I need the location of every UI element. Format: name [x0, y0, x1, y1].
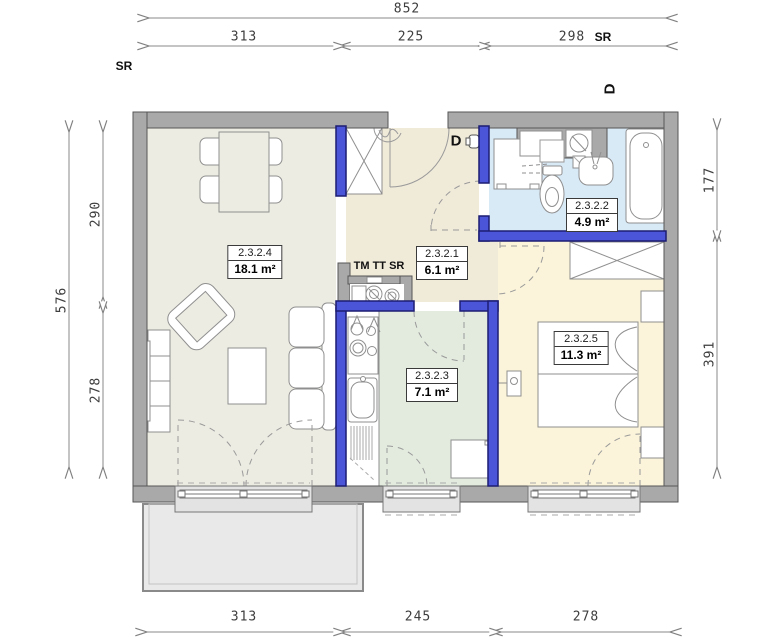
bathtub [626, 129, 666, 223]
window [383, 486, 460, 512]
room-area: 7.1 m² [407, 384, 457, 401]
label-d-top: D [602, 84, 619, 95]
window [175, 486, 312, 512]
room-label-bathroom: 2.3.2.2 4.9 m² [566, 198, 618, 232]
dim-left-total: 576 [55, 287, 70, 313]
label-sr-top-right: SR [595, 30, 612, 44]
room-id: 2.3.2.1 [417, 247, 467, 262]
dim-top-seg-3: 298 [559, 30, 585, 45]
dim-right-seg-2: 391 [703, 341, 718, 367]
tv-unit [144, 330, 170, 432]
coffee-table [228, 348, 266, 404]
floorplan-drawing [0, 0, 768, 637]
room-label-kitchen: 2.3.2.3 7.1 m² [406, 368, 458, 402]
room-id: 2.3.2.3 [407, 369, 457, 384]
floor-plan-canvas: 852 313 225 298 SR SR D 576 290 278 177 … [0, 0, 768, 637]
label-meters-tm-tt-sr: TM TT SR [354, 260, 405, 272]
room-id: 2.3.2.5 [555, 332, 608, 347]
room-id: 2.3.2.2 [567, 199, 617, 214]
room-label-bedroom: 2.3.2.5 11.3 m² [554, 331, 609, 365]
dim-top-total: 852 [394, 2, 420, 17]
hall-wardrobe [346, 128, 382, 194]
dim-bottom-seg-3: 278 [573, 610, 599, 625]
balcony [143, 504, 363, 591]
sofa [289, 303, 336, 430]
window [528, 486, 640, 512]
room-area: 11.3 m² [555, 347, 608, 364]
dim-bottom-seg-1: 313 [231, 610, 257, 625]
label-sr-left: SR [116, 59, 133, 73]
bedroom-wardrobe [570, 242, 664, 279]
dim-top-seg-1: 313 [231, 30, 257, 45]
dim-left-seg-2: 278 [89, 377, 104, 403]
room-area: 6.1 m² [417, 262, 467, 279]
toilet [540, 166, 564, 213]
room-area: 18.1 m² [228, 261, 281, 278]
dim-left-seg-1: 290 [89, 201, 104, 227]
dim-bottom-seg-2: 245 [405, 610, 431, 625]
dim-right-seg-1: 177 [703, 167, 718, 193]
room-label-living: 2.3.2.4 18.1 m² [227, 245, 282, 279]
dim-top-seg-2: 225 [398, 30, 424, 45]
room-area: 4.9 m² [567, 214, 617, 231]
room-label-hall: 2.3.2.1 6.1 m² [416, 246, 468, 280]
label-d-entrance: D [451, 133, 462, 150]
room-id: 2.3.2.4 [228, 246, 281, 261]
